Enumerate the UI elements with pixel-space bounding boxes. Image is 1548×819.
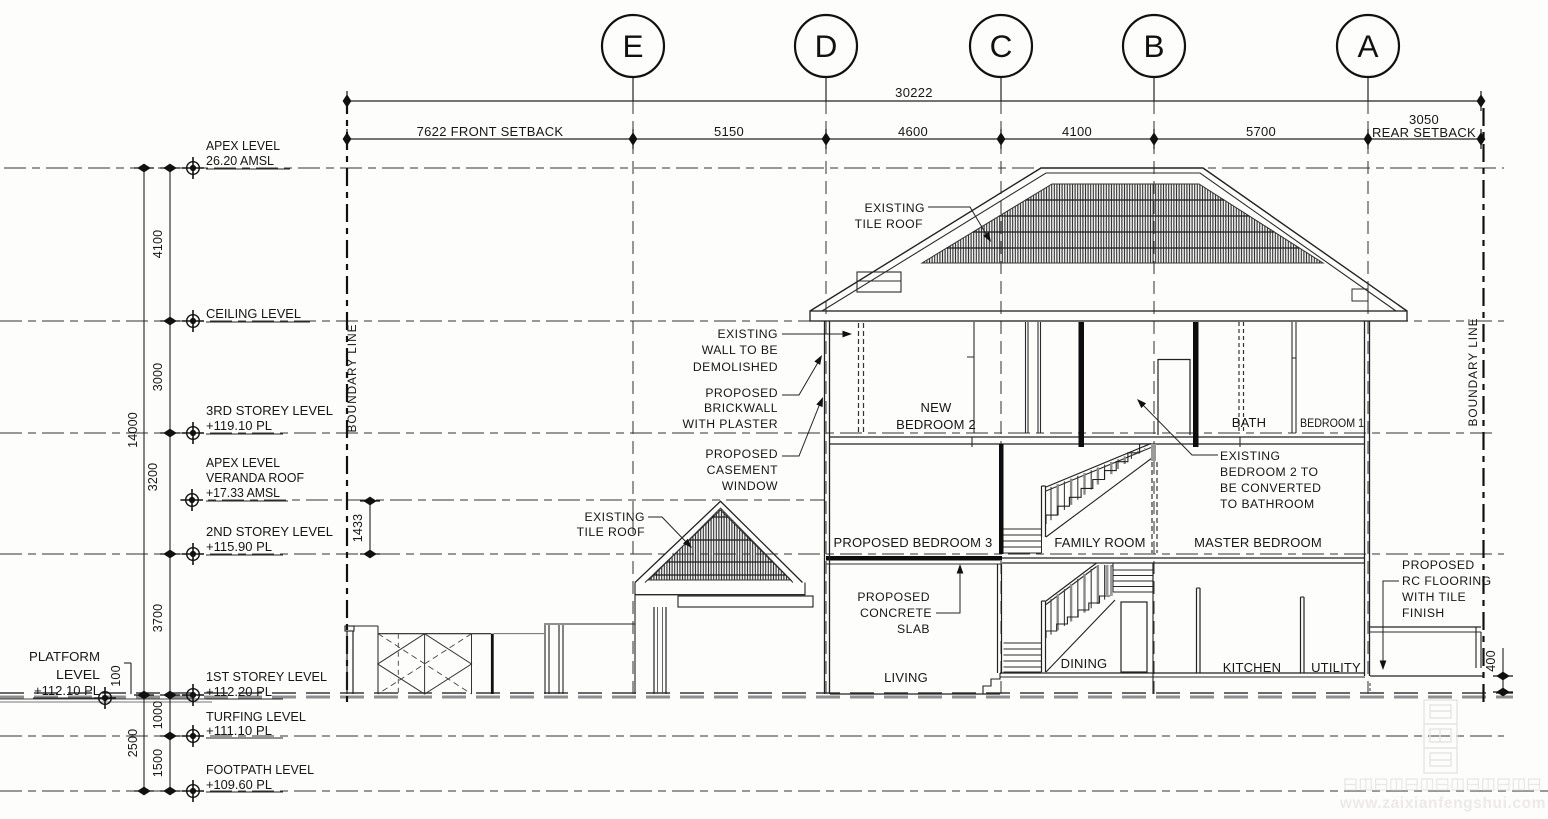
svg-text:FOOTPATH LEVEL: FOOTPATH LEVEL <box>206 762 314 777</box>
svg-text:EXISTING: EXISTING <box>585 510 646 524</box>
svg-text:LEVEL: LEVEL <box>56 667 100 682</box>
svg-text:CEILING LEVEL: CEILING LEVEL <box>206 306 301 321</box>
svg-text:+111.10 PL: +111.10 PL <box>206 723 272 738</box>
svg-text:400: 400 <box>1484 650 1498 671</box>
svg-text:DEMOLISHED: DEMOLISHED <box>693 360 778 374</box>
svg-text:100: 100 <box>109 665 123 686</box>
svg-text:1433: 1433 <box>351 514 365 543</box>
svg-text:EXISTING: EXISTING <box>865 201 926 215</box>
svg-text:3000: 3000 <box>151 363 165 392</box>
svg-text:MASTER BEDROOM: MASTER BEDROOM <box>1194 535 1322 550</box>
svg-text:BOUNDARY LINE: BOUNDARY LINE <box>1466 318 1480 427</box>
svg-text:14000: 14000 <box>126 412 140 448</box>
svg-text:EXISTING: EXISTING <box>718 327 779 341</box>
svg-text:5150: 5150 <box>714 124 744 139</box>
svg-text:26.20 AMSL: 26.20 AMSL <box>206 153 274 168</box>
svg-text:TO BATHROOM: TO BATHROOM <box>1220 497 1315 511</box>
svg-text:E: E <box>622 28 643 64</box>
svg-text:APEX LEVEL: APEX LEVEL <box>206 138 280 153</box>
svg-text:PROPOSED: PROPOSED <box>705 386 778 400</box>
svg-text:1000: 1000 <box>151 701 165 730</box>
svg-text:FAMILY ROOM: FAMILY ROOM <box>1054 535 1145 550</box>
svg-text:BEDROOM 2 TO: BEDROOM 2 TO <box>1220 465 1318 479</box>
svg-text:TILE ROOF: TILE ROOF <box>855 217 923 231</box>
svg-text:C: C <box>990 28 1013 64</box>
svg-text:30222: 30222 <box>895 85 933 100</box>
svg-text:PROPOSED: PROPOSED <box>1402 558 1475 572</box>
svg-text:REAR SETBACK: REAR SETBACK <box>1372 125 1476 140</box>
svg-text:3200: 3200 <box>146 463 160 492</box>
svg-text:1500: 1500 <box>151 749 165 778</box>
svg-text:BE CONVERTED: BE CONVERTED <box>1220 481 1321 495</box>
svg-text:4600: 4600 <box>898 124 928 139</box>
svg-text:BEDROOM 2: BEDROOM 2 <box>896 417 976 432</box>
svg-text:UTILITY: UTILITY <box>1311 660 1361 675</box>
svg-text:BOUNDARY LINE: BOUNDARY LINE <box>345 324 359 433</box>
svg-text:WITH TILE: WITH TILE <box>1402 590 1466 604</box>
svg-text:+115.90 PL: +115.90 PL <box>206 539 272 554</box>
svg-text:+109.60 PL: +109.60 PL <box>206 777 272 792</box>
svg-text:RC FLOORING: RC FLOORING <box>1402 574 1492 588</box>
svg-text:+112.20 PL: +112.20 PL <box>206 684 272 699</box>
svg-text:CONCRETE: CONCRETE <box>860 606 932 620</box>
svg-text:CASEMENT: CASEMENT <box>707 463 778 477</box>
svg-text:LIVING: LIVING <box>884 670 928 685</box>
svg-text:BRICKWALL: BRICKWALL <box>704 401 778 415</box>
svg-text:PROPOSED BEDROOM 3: PROPOSED BEDROOM 3 <box>834 535 993 550</box>
svg-text:4100: 4100 <box>1062 124 1092 139</box>
svg-text:BATH: BATH <box>1232 415 1267 430</box>
svg-text:1ST STOREY LEVEL: 1ST STOREY LEVEL <box>206 669 327 684</box>
svg-text:D: D <box>815 28 838 64</box>
svg-text:www.zaixianfengshui.com: www.zaixianfengshui.com <box>1339 795 1546 812</box>
svg-text:WALL TO BE: WALL TO BE <box>702 343 778 357</box>
svg-text:FINISH: FINISH <box>1402 606 1445 620</box>
svg-text:3RD STOREY LEVEL: 3RD STOREY LEVEL <box>206 403 333 418</box>
svg-text:4100: 4100 <box>151 230 165 259</box>
svg-text:NEW: NEW <box>921 400 952 415</box>
svg-text:B: B <box>1143 28 1164 64</box>
svg-text:2ND STOREY LEVEL: 2ND STOREY LEVEL <box>206 524 333 539</box>
svg-text:+17.33 AMSL: +17.33 AMSL <box>206 485 280 500</box>
svg-text:WITH PLASTER: WITH PLASTER <box>683 417 778 431</box>
svg-text:KITCHEN: KITCHEN <box>1223 660 1281 675</box>
svg-text:TILE ROOF: TILE ROOF <box>577 525 645 539</box>
svg-text:DINING: DINING <box>1061 656 1108 671</box>
svg-text:WINDOW: WINDOW <box>722 479 778 493</box>
svg-text:PROPOSED: PROPOSED <box>857 590 930 604</box>
svg-text:2500: 2500 <box>126 729 140 758</box>
svg-text:TURFING LEVEL: TURFING LEVEL <box>206 709 306 724</box>
svg-text:PLATFORM: PLATFORM <box>29 649 100 664</box>
svg-text:5700: 5700 <box>1246 124 1276 139</box>
svg-text:PROPOSED: PROPOSED <box>705 447 778 461</box>
svg-text:A: A <box>1357 28 1378 64</box>
svg-text:3700: 3700 <box>151 604 165 633</box>
svg-text:7622 FRONT SETBACK: 7622 FRONT SETBACK <box>417 124 564 139</box>
svg-text:+119.10 PL: +119.10 PL <box>206 418 272 433</box>
svg-text:VERANDA ROOF: VERANDA ROOF <box>206 470 304 485</box>
svg-text:EXISTING: EXISTING <box>1220 449 1281 463</box>
svg-text:SLAB: SLAB <box>897 622 930 636</box>
svg-text:BEDROOM 1: BEDROOM 1 <box>1300 416 1364 430</box>
svg-text:+112.10 PL: +112.10 PL <box>34 683 100 698</box>
svg-text:APEX LEVEL: APEX LEVEL <box>206 455 280 470</box>
